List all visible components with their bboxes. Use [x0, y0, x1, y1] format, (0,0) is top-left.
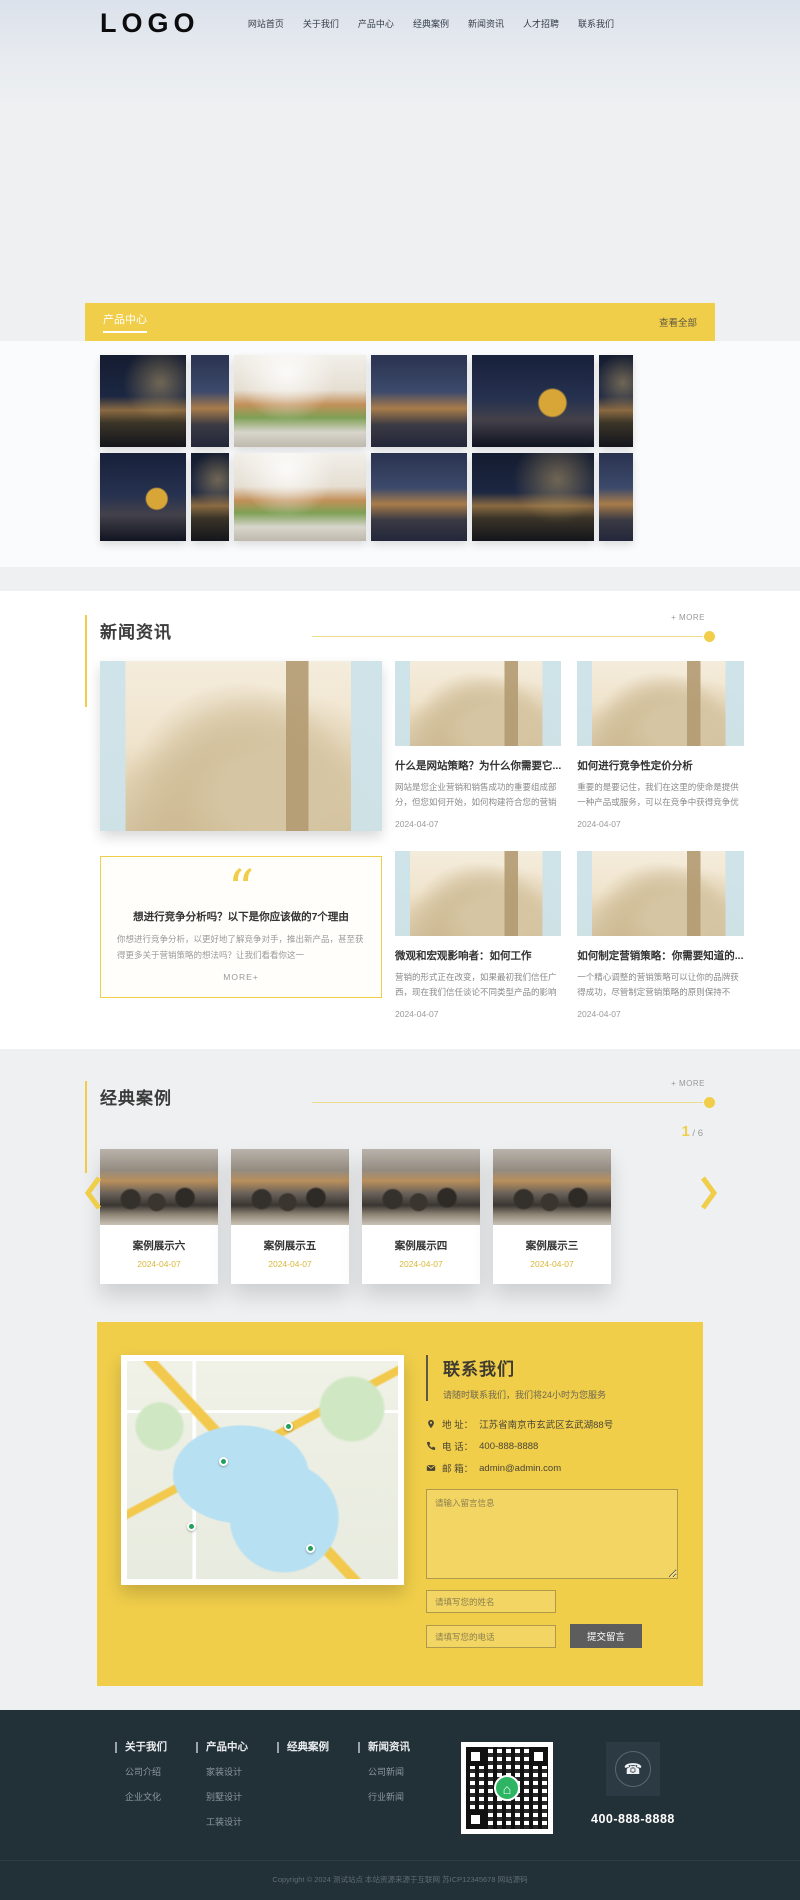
divider-line: [312, 1102, 703, 1103]
footer-col-title: 产品中心: [196, 1742, 277, 1753]
news-photo: [577, 661, 743, 746]
nav-item-home[interactable]: 网站首页: [248, 17, 284, 30]
footer-col-about: 关于我们 公司介绍 企业文化: [115, 1742, 196, 1834]
phone-row: 电 话：400-888-8888: [426, 1439, 679, 1453]
footer: 关于我们 公司介绍 企业文化 产品中心 家装设计 别墅设计 工装设计 经典案例 …: [0, 1710, 800, 1900]
product-row: [100, 355, 640, 447]
product-photo[interactable]: [234, 453, 366, 541]
product-photo[interactable]: [472, 355, 594, 447]
nav-item-contact[interactable]: 联系我们: [578, 17, 614, 30]
product-photo[interactable]: [191, 453, 229, 541]
product-photo[interactable]: [599, 355, 633, 447]
product-photo[interactable]: [100, 355, 186, 447]
product-row: [100, 453, 640, 541]
news-item[interactable]: 什么是网站策略？为什么你需要它... 网站是您企业营销和销售成功的重要组成部分，…: [395, 661, 561, 829]
footer-inner: 关于我们 公司介绍 企业文化 产品中心 家装设计 别墅设计 工装设计 经典案例 …: [85, 1710, 715, 1834]
accent-dot: [704, 631, 715, 642]
news-item-desc: 网站是您企业营销和销售成功的重要组成部分，但您如何开始，如何构建符合您的营销: [395, 780, 561, 811]
news-item-title: 如何制定营销策略：你需要知道的...: [577, 948, 743, 963]
case-photo: [362, 1149, 480, 1225]
qr-finder: [466, 1810, 485, 1829]
news-section: 新闻资讯 + MORE “ 想进行竞争分析吗？以下是你应该做的7个理由 你想进行…: [0, 591, 800, 1049]
product-photo[interactable]: [100, 453, 186, 541]
news-item[interactable]: 如何制定营销策略：你需要知道的... 一个精心调整的营销策略可以让你的品牌获得成…: [577, 851, 743, 1019]
qr-finder: [529, 1747, 548, 1766]
nav-item-about[interactable]: 关于我们: [303, 17, 339, 30]
map-image[interactable]: [121, 1355, 404, 1585]
news-photo: [395, 851, 561, 936]
nav-item-products[interactable]: 产品中心: [358, 17, 394, 30]
logo[interactable]: LOGO: [100, 8, 200, 39]
phone-icon: ☎: [615, 1751, 651, 1787]
footer-col-products: 产品中心 家装设计 别墅设计 工装设计: [196, 1742, 277, 1834]
case-date: 2024-04-07: [497, 1259, 607, 1269]
footer-col-cases: 经典案例: [277, 1742, 358, 1834]
name-input[interactable]: [426, 1590, 556, 1613]
page-current: 1: [681, 1123, 689, 1140]
footer-col-title: 经典案例: [277, 1742, 358, 1753]
news-item-desc: 营销的形式正在改变，如果最初我们信任广西，现在我们信任谈论不同类型产品的影响: [395, 970, 561, 1001]
map-pin: [187, 1522, 196, 1531]
case-card[interactable]: 案例展示五 2024-04-07: [231, 1149, 349, 1284]
case-card[interactable]: 案例展示六 2024-04-07: [100, 1149, 218, 1284]
quote-title: 想进行竞争分析吗？以下是你应该做的7个理由: [117, 909, 365, 924]
footer-col-title: 新闻资讯: [358, 1742, 439, 1753]
contact-title: 联系我们: [443, 1355, 679, 1380]
map-pin: [284, 1422, 293, 1431]
news-item-desc: 一个精心调整的营销策略可以让你的品牌获得成功，尽管制定营销策略的原则保持不: [577, 970, 743, 1001]
product-photo[interactable]: [371, 453, 467, 541]
case-title: 案例展示六: [104, 1238, 214, 1253]
news-title: 新闻资讯: [100, 618, 172, 643]
product-photo[interactable]: [599, 453, 633, 541]
hero-overlay: [0, 0, 800, 341]
footer-link[interactable]: 家装设计: [196, 1765, 277, 1778]
footer-col-news: 新闻资讯 公司新闻 行业新闻: [358, 1742, 439, 1834]
message-input[interactable]: [426, 1489, 678, 1579]
news-photo: [395, 661, 561, 746]
product-banner-title: 产品中心: [103, 311, 147, 333]
news-featured-photo[interactable]: [100, 661, 382, 831]
cases-title: 经典案例: [100, 1084, 172, 1109]
news-item-date: 2024-04-07: [395, 819, 561, 829]
submit-button[interactable]: 提交留言: [570, 1624, 642, 1648]
address-label: 地 址：: [442, 1417, 473, 1431]
hotline-number: 400-888-8888: [591, 1812, 675, 1826]
product-photo[interactable]: [472, 453, 594, 541]
map-pin: [306, 1544, 315, 1553]
products-section: [0, 341, 800, 567]
qr-code: ⌂: [461, 1742, 553, 1834]
page: LOGO 网站首页 关于我们 产品中心 经典案例 新闻资讯 人才招聘 联系我们 …: [0, 0, 800, 1900]
case-card[interactable]: 案例展示四 2024-04-07: [362, 1149, 480, 1284]
cases-header: 经典案例 + MORE: [85, 1079, 715, 1113]
news-grid: 什么是网站策略？为什么你需要它... 网站是您企业营销和销售成功的重要组成部分，…: [395, 661, 744, 1019]
contact-block: 联系我们 请随时联系我们，我们将24小时为您服务 地 址：江苏省南京市玄武区玄武…: [97, 1322, 703, 1686]
qr-finder: [466, 1747, 485, 1766]
news-item[interactable]: 如何进行竞争性定价分析 重要的是要记住，我们在这里的使命是提供一种产品或服务，可…: [577, 661, 743, 829]
news-item[interactable]: 微观和宏观影响者：如何工作 营销的形式正在改变，如果最初我们信任广西，现在我们信…: [395, 851, 561, 1019]
product-gallery: [100, 355, 640, 541]
news-item-date: 2024-04-07: [577, 819, 743, 829]
case-photo: [493, 1149, 611, 1225]
footer-link[interactable]: 别墅设计: [196, 1790, 277, 1803]
news-header-right: + MORE: [312, 613, 715, 647]
accent-dot: [704, 1097, 715, 1108]
next-arrow-icon[interactable]: [699, 1175, 719, 1211]
prev-arrow-icon[interactable]: [83, 1175, 103, 1211]
message-form: 提交留言: [426, 1489, 679, 1648]
location-icon: [426, 1419, 436, 1429]
case-title: 案例展示五: [235, 1238, 345, 1253]
footer-hotline: ☎ 400-888-8888: [591, 1742, 675, 1834]
footer-col-title: 关于我们: [115, 1742, 196, 1753]
phone-icon: [426, 1441, 436, 1451]
product-banner: 产品中心 查看全部: [85, 303, 715, 341]
news-left-column: “ 想进行竞争分析吗？以下是你应该做的7个理由 你想进行竞争分析，以更好地了解竞…: [100, 661, 382, 1019]
case-date: 2024-04-07: [366, 1259, 476, 1269]
case-title: 案例展示四: [366, 1238, 476, 1253]
news-item-desc: 重要的是要记住，我们在这里的使命是提供一种产品或服务，可以在竞争中获得竞争优: [577, 780, 743, 811]
email-row: 邮 箱：admin@admin.com: [426, 1461, 679, 1475]
address-value: 江苏省南京市玄武区玄武湖88号: [479, 1417, 613, 1431]
footer-link[interactable]: 公司介绍: [115, 1765, 196, 1778]
home-icon: ⌂: [494, 1775, 520, 1801]
divider-line: [312, 636, 703, 637]
contact-header: 联系我们 请随时联系我们，我们将24小时为您服务: [426, 1355, 679, 1401]
main-nav: 网站首页 关于我们 产品中心 经典案例 新闻资讯 人才招聘 联系我们: [248, 17, 614, 30]
footer-link[interactable]: 企业文化: [115, 1790, 196, 1803]
email-value: admin@admin.com: [479, 1463, 561, 1474]
nav-item-news[interactable]: 新闻资讯: [468, 17, 504, 30]
case-date: 2024-04-07: [235, 1259, 345, 1269]
hero-section: LOGO 网站首页 关于我们 产品中心 经典案例 新闻资讯 人才招聘 联系我们 …: [0, 0, 800, 341]
phone-label: 电 话：: [442, 1439, 473, 1453]
mail-icon: [426, 1463, 436, 1473]
news-more-link[interactable]: + MORE: [671, 613, 705, 622]
contact-rows: 地 址：江苏省南京市玄武区玄武湖88号 电 话：400-888-8888 邮 箱…: [426, 1417, 679, 1475]
news-item-date: 2024-04-07: [577, 1009, 743, 1019]
cases-section: 经典案例 + MORE 1 / 6 案例展示六 2024-04-07: [0, 1049, 800, 1294]
nav-item-jobs[interactable]: 人才招聘: [523, 17, 559, 30]
topbar: LOGO 网站首页 关于我们 产品中心 经典案例 新闻资讯 人才招聘 联系我们: [0, 0, 800, 46]
news-item-date: 2024-04-07: [395, 1009, 561, 1019]
quote-card[interactable]: “ 想进行竞争分析吗？以下是你应该做的7个理由 你想进行竞争分析，以更好地了解竞…: [100, 856, 382, 998]
case-cards: 案例展示六 2024-04-07 案例展示五 2024-04-07 案例展示四 …: [100, 1149, 700, 1284]
contact-section: 联系我们 请随时联系我们，我们将24小时为您服务 地 址：江苏省南京市玄武区玄武…: [0, 1294, 800, 1710]
page-total: / 6: [690, 1128, 703, 1139]
view-all-link[interactable]: 查看全部: [659, 315, 697, 329]
case-date: 2024-04-07: [104, 1259, 214, 1269]
map-pin: [219, 1457, 228, 1466]
cases-more-link[interactable]: + MORE: [671, 1079, 705, 1088]
footer-link[interactable]: 公司新闻: [358, 1765, 439, 1778]
carousel-pagination: 1 / 6: [85, 1113, 715, 1149]
product-photo[interactable]: [191, 355, 229, 447]
case-photo: [231, 1149, 349, 1225]
address-row: 地 址：江苏省南京市玄武区玄武湖88号: [426, 1417, 679, 1431]
cases-carousel: 案例展示六 2024-04-07 案例展示五 2024-04-07 案例展示四 …: [85, 1149, 715, 1284]
quote-desc: 你想进行竞争分析，以更好地了解竞争对手，推出新产品，甚至获得更多关于营销策略的想…: [117, 932, 365, 963]
news-item-title: 什么是网站策略？为什么你需要它...: [395, 758, 561, 773]
case-card[interactable]: 案例展示三 2024-04-07: [493, 1149, 611, 1284]
product-photo[interactable]: [371, 355, 467, 447]
nav-item-cases[interactable]: 经典案例: [413, 17, 449, 30]
product-photo[interactable]: [234, 355, 366, 447]
quote-icon: “: [117, 867, 365, 907]
email-label: 邮 箱：: [442, 1461, 473, 1475]
copyright: Copyright © 2024 测试站点 本站资源来源于互联网 苏ICP123…: [0, 1860, 800, 1900]
footer-link[interactable]: 行业新闻: [358, 1790, 439, 1803]
phone-tile: ☎: [606, 1742, 660, 1796]
phone-value: 400-888-8888: [479, 1441, 538, 1452]
case-title: 案例展示三: [497, 1238, 607, 1253]
contact-info: 联系我们 请随时联系我们，我们将24小时为您服务 地 址：江苏省南京市玄武区玄武…: [426, 1355, 679, 1648]
quote-more-link[interactable]: MORE+: [223, 972, 258, 982]
news-body: “ 想进行竞争分析吗？以下是你应该做的7个理由 你想进行竞争分析，以更好地了解竞…: [85, 647, 715, 1019]
case-photo: [100, 1149, 218, 1225]
news-photo: [577, 851, 743, 936]
footer-link[interactable]: 工装设计: [196, 1815, 277, 1828]
cases-header-right: + MORE: [312, 1079, 715, 1113]
news-header: 新闻资讯 + MORE: [85, 613, 715, 647]
news-item-title: 微观和宏观影响者：如何工作: [395, 948, 561, 963]
news-item-title: 如何进行竞争性定价分析: [577, 758, 743, 773]
phone-input[interactable]: [426, 1625, 556, 1648]
contact-subtitle: 请随时联系我们，我们将24小时为您服务: [443, 1388, 679, 1401]
